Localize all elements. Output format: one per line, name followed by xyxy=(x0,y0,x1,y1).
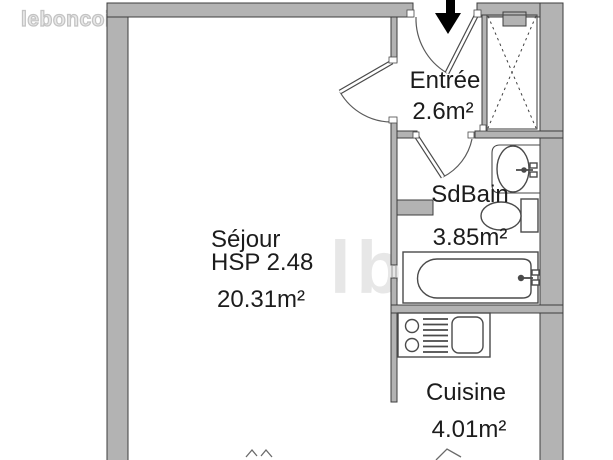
sdbain-area: 3.85m² xyxy=(433,224,508,251)
sejour-door-swing xyxy=(340,92,394,122)
bathtub-tap-mount xyxy=(532,280,539,285)
closet-notch xyxy=(503,12,526,26)
burner-icon xyxy=(406,339,419,352)
door-jamb-mark xyxy=(389,57,397,63)
left-wall xyxy=(107,3,128,460)
washbasin-tap-mount xyxy=(530,172,537,177)
door-jamb-mark xyxy=(480,125,486,131)
bathtub-tap-mount xyxy=(532,270,539,275)
toilet-cistern xyxy=(521,199,538,232)
sdbain-door-leaf xyxy=(417,137,443,177)
top-wall xyxy=(107,3,413,17)
entree-area: 2.6m² xyxy=(412,98,473,125)
drainer-icon xyxy=(423,319,448,352)
closet-left-wall xyxy=(482,15,487,131)
closet xyxy=(487,15,537,129)
duct-stub xyxy=(397,200,433,215)
floorplan-svg: lbc xyxy=(0,0,613,460)
entree-label: Entrée xyxy=(410,67,481,94)
door-jamb-mark xyxy=(389,117,397,123)
burner-icon xyxy=(406,320,419,333)
partition-upper xyxy=(391,17,397,62)
bathtub-icon xyxy=(418,259,531,298)
bathtub-tap-knob xyxy=(518,275,524,281)
washbasin-tap-mount xyxy=(530,163,537,168)
partition-lower xyxy=(391,278,397,402)
entrance-door-swing xyxy=(416,17,447,73)
sejour-door-leaf xyxy=(340,62,392,92)
kitchen-fixtures xyxy=(398,313,490,357)
door-jamb-mark xyxy=(474,10,481,17)
sejour-area: 20.31m² xyxy=(217,286,305,313)
sdbain-label: SdBain xyxy=(431,181,508,208)
cuisine-area: 4.01m² xyxy=(432,416,507,443)
arrow-shaft xyxy=(446,0,455,15)
floorplan-image: leboncoin lbc xyxy=(0,0,613,460)
arrow-head-icon xyxy=(435,13,461,34)
door-jamb-mark xyxy=(468,132,474,138)
sdbain-door-swing xyxy=(443,139,472,177)
right-wall xyxy=(540,3,563,460)
wall-under-closet xyxy=(475,131,563,138)
bottom-cutoff-fragments xyxy=(246,449,461,460)
sdbain-cuisine-wall xyxy=(391,305,563,313)
sejour-height-note: HSP 2.48 xyxy=(211,249,313,276)
cuisine-label: Cuisine xyxy=(426,379,506,406)
door-jamb-mark xyxy=(413,132,419,138)
door-jamb-mark xyxy=(407,10,414,17)
washbasin-tap-knob xyxy=(521,167,527,173)
entrance-arrow xyxy=(435,0,461,34)
kitchen-sink-icon xyxy=(452,317,483,353)
partition-mid xyxy=(391,120,397,265)
